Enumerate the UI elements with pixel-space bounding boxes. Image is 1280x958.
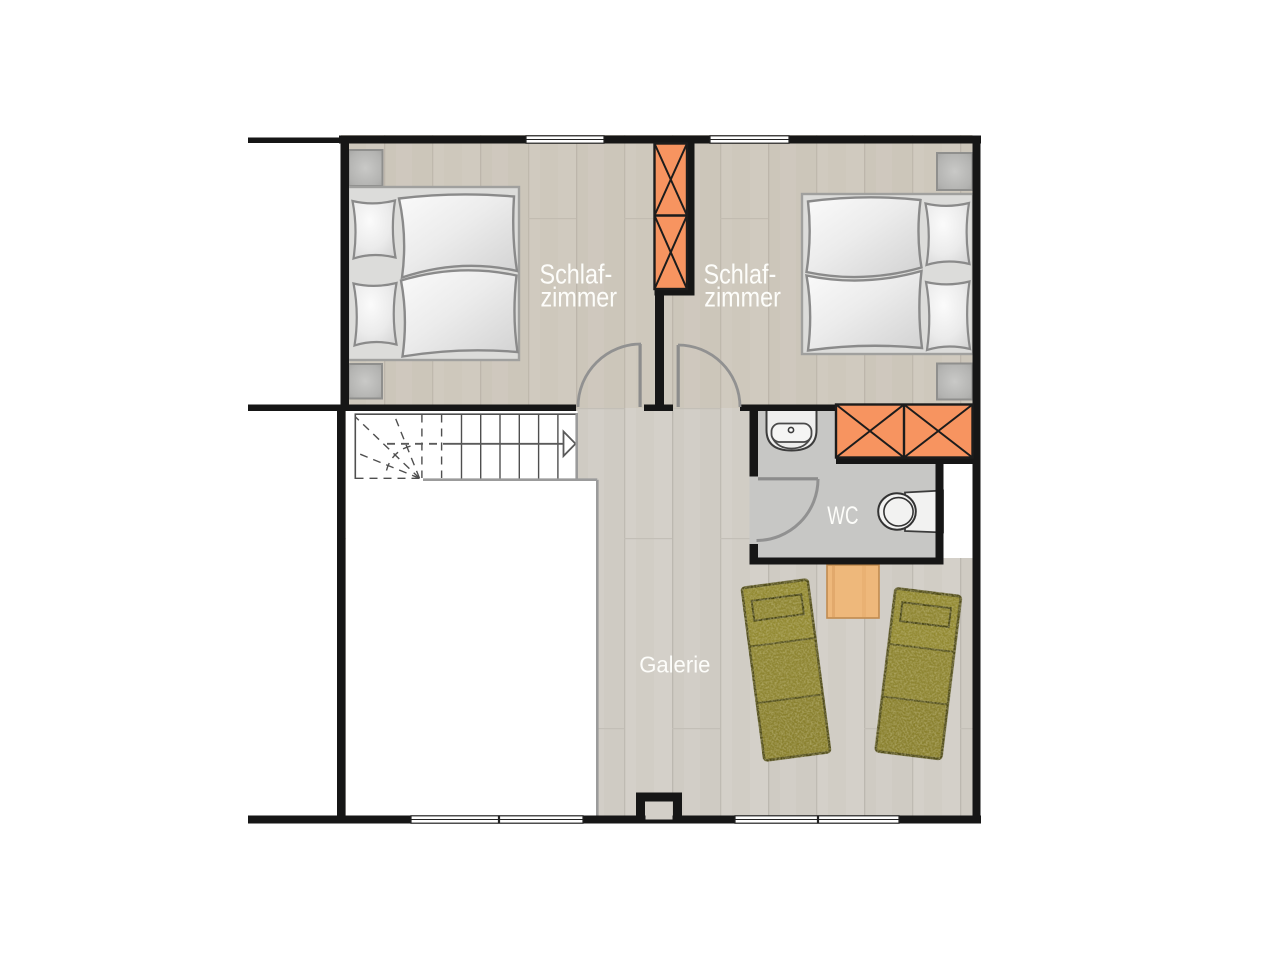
svg-text:WC: WC (827, 501, 858, 529)
svg-text:Galerie: Galerie (639, 651, 710, 678)
svg-text:zimmer: zimmer (541, 283, 618, 313)
svg-text:zimmer: zimmer (704, 283, 781, 313)
